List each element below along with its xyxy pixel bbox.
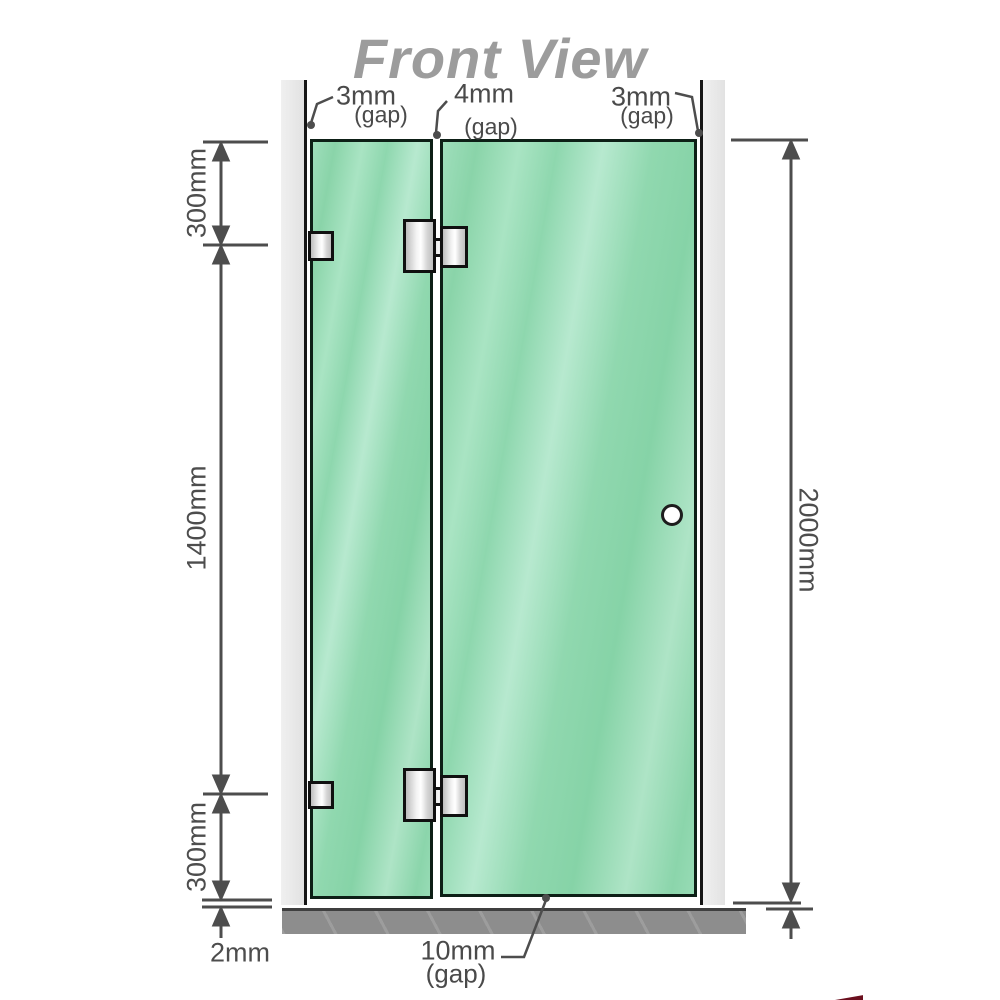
glass-hinge-top-right-plate — [440, 226, 468, 268]
front-view-diagram: Front View — [0, 0, 1000, 1000]
glass-hinge-top-left-plate — [403, 219, 436, 273]
glass-hinge-bottom-right-plate — [440, 775, 468, 817]
hinged-glass-door-panel — [440, 139, 697, 897]
watermark-fragment — [835, 993, 863, 1000]
dimension-label-left-bottom: 300mm — [182, 802, 213, 892]
floor-base — [282, 908, 746, 934]
wall-bracket-bottom-icon — [308, 781, 334, 809]
glass-hinge-bottom-left-plate — [403, 768, 436, 822]
gap-label-top-mid-value: 4mm — [454, 79, 514, 110]
dimension-label-floor-gap: 2mm — [210, 938, 270, 969]
wall-bracket-top-icon — [308, 231, 334, 261]
right-wall-channel — [700, 80, 725, 905]
gap-label-top-right-suffix: (gap) — [620, 103, 674, 130]
dimension-label-left-mid: 1400mm — [182, 465, 213, 570]
dimension-label-right-total: 2000mm — [793, 487, 824, 592]
gap-label-top-left-suffix: (gap) — [354, 102, 408, 129]
gap-label-top-mid-suffix: (gap) — [464, 114, 518, 141]
left-wall-channel — [281, 80, 307, 905]
dimension-label-left-top: 300mm — [182, 148, 213, 238]
door-knob — [661, 504, 683, 526]
gap-label-bottom-suffix: (gap) — [426, 959, 487, 990]
